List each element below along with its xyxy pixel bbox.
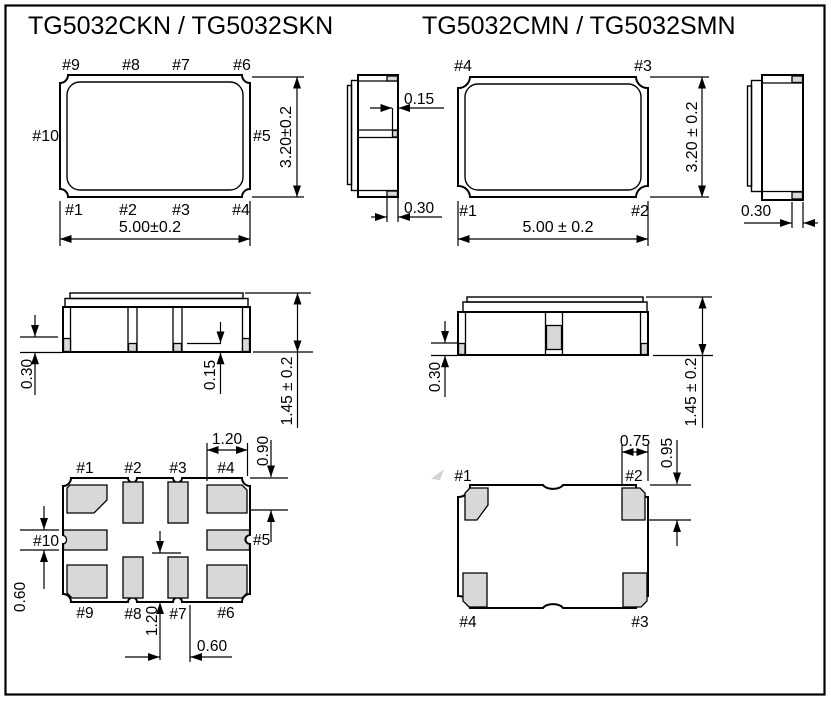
lid-flange [463, 302, 647, 312]
pad-7 [168, 557, 188, 598]
pad-length-dimension: 0.95 [648, 438, 691, 546]
lid-flange [65, 299, 248, 308]
left-title: TG5032CKN / TG5032SKN [28, 12, 333, 40]
dim-label: 0.90 [255, 436, 272, 467]
cursor-artifact [431, 469, 444, 480]
pin-label: #3 [172, 202, 190, 219]
pad-3 [168, 482, 188, 523]
pin-label: #8 [122, 57, 140, 74]
lid-step [748, 86, 752, 186]
lid-flange [752, 81, 763, 192]
pad-2 [622, 488, 645, 520]
pin-label: #4 [232, 202, 250, 219]
left-front-view: 0.30 0.15 1.45 ± 0.2 [19, 293, 313, 428]
dim-label: 1.20 [212, 431, 243, 448]
terminal-pad [387, 76, 398, 81]
dim-label: 3.20 ± 0.2 [684, 101, 701, 172]
drawing-canvas: TG5032CKN / TG5032SKN #9 #8 #7 #6 #1 #2 … [0, 0, 831, 701]
lid-top [70, 293, 243, 299]
dim-label: 0.30 [404, 200, 435, 217]
center-pad-dimension: 0.15 [187, 322, 221, 394]
pad-4 [463, 573, 487, 607]
dim-label: 5.00±0.2 [119, 219, 181, 236]
right-package-section: TG5032CMN / TG5032SMN #4 #3 #1 #2 5.00 ±… [422, 12, 818, 631]
dim-label: 1.45 ± 0.2 [683, 358, 700, 427]
lid-top [467, 297, 643, 302]
pin-label: #9 [76, 605, 93, 622]
corner-pad-length-dimension: 0.90 [249, 436, 288, 542]
pad-9 [67, 565, 107, 598]
right-side-view: 0.30 [741, 75, 818, 228]
dim-label: 0.30 [427, 362, 444, 393]
pin-label: #7 [172, 57, 190, 74]
body-outline [762, 75, 803, 200]
package-lid-outline [465, 84, 641, 190]
dim-label: 0.15 [404, 91, 434, 108]
terminal-pad [393, 131, 398, 138]
pin-label: #10 [33, 533, 59, 550]
right-front-view: 0.30 1.45 ± 0.2 [427, 297, 713, 428]
side-pad-width-dimension: 0.60 [12, 506, 59, 612]
terminal-pad [129, 344, 137, 352]
pin-label: #2 [631, 203, 649, 220]
pin-label: #1 [459, 203, 477, 220]
pin-label: #7 [169, 606, 186, 623]
package-lid-outline [67, 82, 243, 190]
dim-label: 3.20±0.2 [278, 106, 295, 168]
center-terminal-pad [547, 326, 562, 350]
pin-label: #5 [253, 128, 271, 145]
terminal-pad [243, 339, 250, 352]
pad-6 [207, 565, 247, 598]
pin-label: #2 [119, 202, 137, 219]
pin-label: #1 [65, 202, 83, 219]
lid-step [348, 86, 352, 185]
pin-label: #10 [32, 128, 59, 145]
width-dimension: 5.00 ± 0.2 [458, 201, 648, 246]
terminal-pad [64, 339, 71, 352]
pin-label: #9 [62, 57, 80, 74]
dim-label: 0.60 [197, 638, 228, 655]
pad-1 [67, 485, 107, 513]
terminal-pad [459, 344, 466, 355]
dim-label: 0.30 [741, 203, 772, 220]
body-height-dimension: 1.45 ± 0.2 [245, 293, 313, 428]
datasheet-drawing-page: TG5032CKN / TG5032SKN #9 #8 #7 #6 #1 #2 … [0, 0, 831, 701]
dim-label: 1.20 [144, 606, 161, 637]
terminal-pad [792, 76, 803, 83]
package-outline [60, 75, 250, 197]
pad-inset-dimension: 0.15 [370, 91, 444, 131]
pin-label: #1 [454, 468, 471, 485]
terminal-pad [387, 191, 398, 197]
dim-label: 0.75 [620, 433, 650, 450]
left-top-view: #9 #8 #7 #6 #1 #2 #3 #4 #10 #5 5.00±0.2 … [32, 57, 304, 246]
pad-2 [123, 482, 143, 523]
dim-label: 0.30 [19, 359, 36, 390]
pad-4 [207, 485, 247, 513]
pin-label: #6 [217, 605, 234, 622]
pin-label: #4 [459, 614, 477, 631]
pin-label: #3 [631, 614, 648, 631]
pad-1 [465, 488, 488, 520]
pin-label: #2 [124, 460, 141, 477]
dim-label: 1.45 ± 0.2 [279, 357, 296, 426]
right-title: TG5032CMN / TG5032SMN [422, 12, 736, 40]
pad-8 [123, 557, 143, 598]
pad-width-dimension: 0.30 [741, 202, 818, 228]
width-dimension: 5.00±0.2 [60, 201, 250, 246]
body-height-dimension: 1.45 ± 0.2 [646, 297, 713, 428]
body-outline [63, 307, 250, 352]
pad-3 [623, 573, 647, 607]
pad-height-dimension: 0.30 [427, 321, 457, 397]
pad-height-dimension: 0.30 [19, 315, 62, 395]
pin-label: #1 [76, 460, 93, 477]
height-dimension: 3.20 ± 0.2 [650, 77, 709, 197]
terminal-pad [174, 344, 182, 352]
terminal-pad [641, 344, 648, 355]
package-outline [458, 77, 648, 197]
right-top-view: #4 #3 #1 #2 5.00 ± 0.2 3.20 ± 0.2 [454, 58, 709, 246]
dim-label: 0.60 [12, 582, 29, 613]
pin-label: #2 [625, 468, 642, 485]
pin-label: #4 [454, 58, 472, 75]
left-side-view: 0.15 0.30 [348, 75, 445, 222]
right-bottom-view: #1 #2 #4 #3 0.75 0.95 [431, 433, 691, 631]
terminal-pad [792, 192, 803, 199]
left-package-section: TG5032CKN / TG5032SKN #9 #8 #7 #6 #1 #2 … [12, 12, 444, 662]
pin-label: #3 [169, 460, 186, 477]
pad-5 [207, 530, 250, 550]
pin-label: #5 [253, 532, 270, 549]
dim-label: 0.15 [202, 360, 219, 390]
dim-label: 5.00 ± 0.2 [522, 219, 593, 236]
pin-label: #8 [124, 606, 141, 623]
pad-10 [64, 530, 108, 550]
pad-width-dimension: 0.30 [371, 198, 442, 222]
pin-label: #6 [233, 57, 251, 74]
dim-label: 0.95 [659, 438, 676, 468]
left-bottom-view: #1 #2 #3 #4 #9 #8 #7 #6 #10 #5 1.20 0.90 [12, 431, 288, 662]
pin-label: #3 [634, 58, 652, 75]
pin-label: #4 [217, 460, 235, 477]
